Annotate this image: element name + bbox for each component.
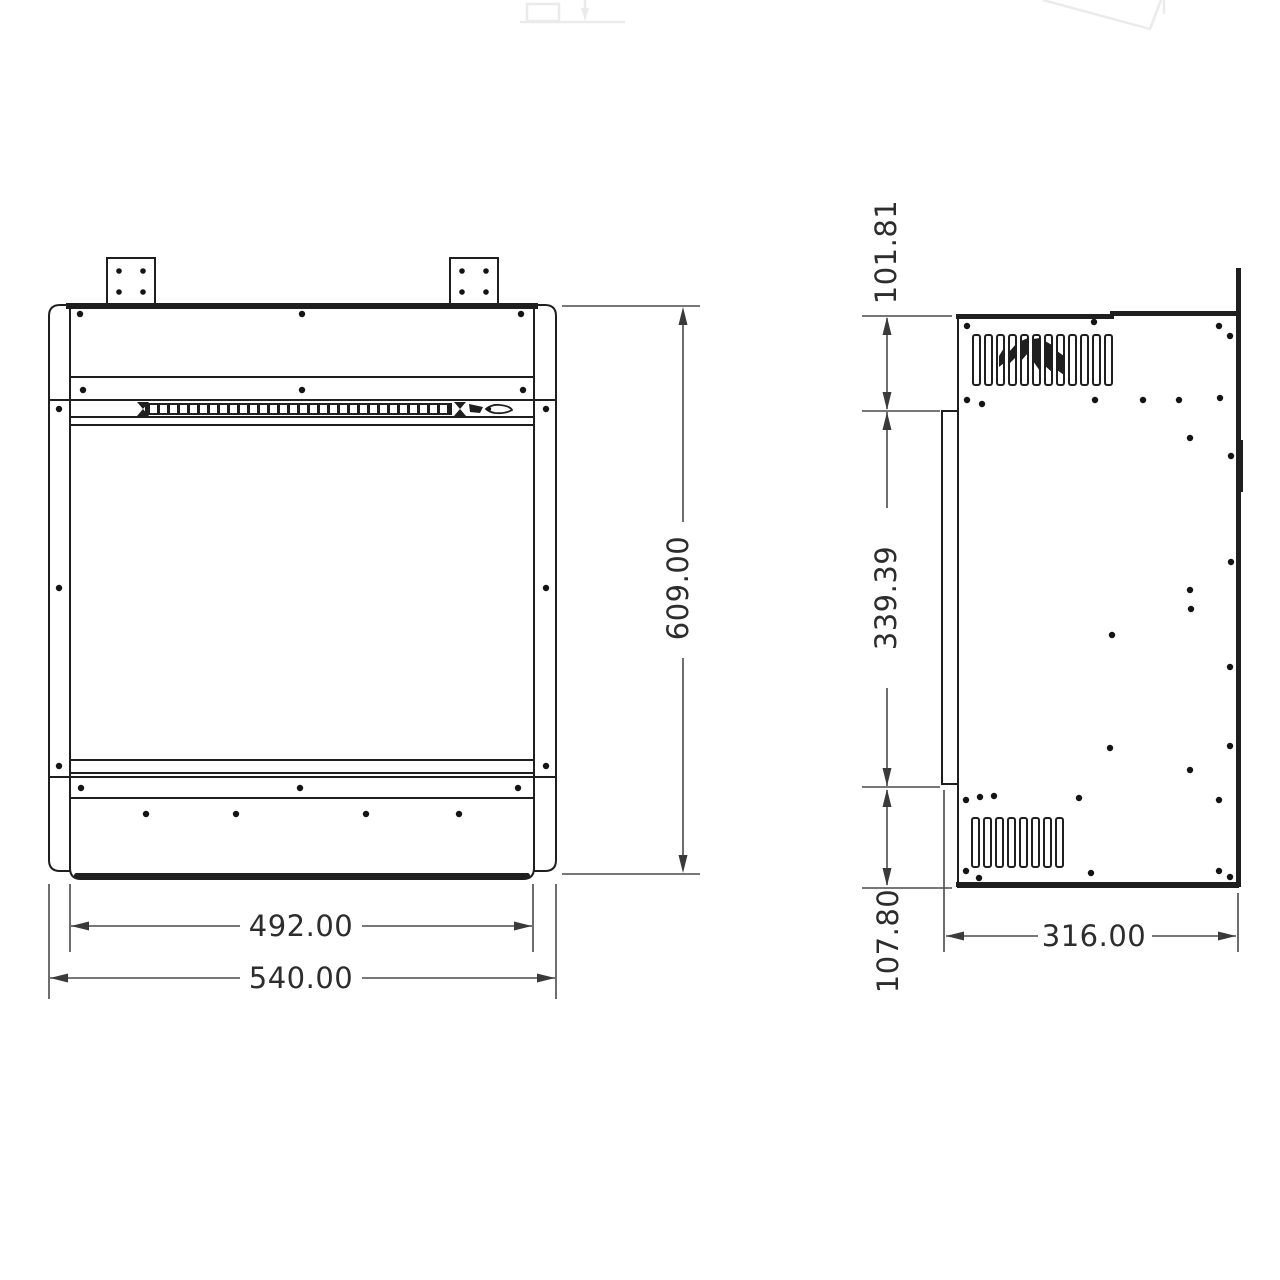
screw-hole — [1227, 664, 1233, 670]
dimension-arrow — [1218, 932, 1236, 941]
rail-corner-top-left — [49, 305, 70, 400]
screw-hole — [515, 785, 521, 791]
side-top-edge — [956, 314, 1114, 319]
dimension-arrow — [679, 307, 688, 325]
bracket-hole — [140, 289, 146, 295]
screw-hole — [1216, 323, 1222, 329]
screw-hole — [1217, 395, 1223, 401]
screw-hole — [1216, 868, 1222, 874]
screw-hole — [1187, 587, 1193, 593]
screw-hole — [1188, 606, 1194, 612]
rail-corner-top-right — [534, 305, 556, 400]
screw-hole — [1092, 397, 1098, 403]
dimension-arrow — [679, 855, 688, 873]
dimension-label-depth: 316.00 — [1042, 919, 1146, 953]
rail-corner-bottom-right — [534, 777, 556, 871]
dimension-arrow — [883, 768, 892, 786]
drawing-page: 609.00 492.00 540.00 — [0, 0, 1280, 1280]
screw-hole — [1076, 795, 1082, 801]
dim-opening-width: 492.00 — [70, 884, 533, 952]
bracket-hole — [459, 268, 465, 274]
rail-corner-bottom-left — [49, 777, 70, 871]
screw-hole — [1176, 397, 1182, 403]
glass-area — [70, 425, 534, 760]
dimension-label-glass-section: 339.39 — [869, 546, 903, 650]
screw-hole — [1187, 767, 1193, 773]
side-view — [942, 268, 1243, 887]
mounting-bracket-left — [107, 258, 155, 305]
back-tab — [1239, 440, 1243, 492]
screw-hole — [1107, 745, 1113, 751]
screw-hole — [543, 763, 549, 769]
dimension-arrow — [50, 974, 68, 983]
screw-hole — [143, 811, 149, 817]
screw-hole — [977, 794, 983, 800]
bracket-hole — [140, 268, 146, 274]
screw-hole — [56, 406, 62, 412]
screw-hole — [1109, 632, 1115, 638]
screw-hole — [543, 585, 549, 591]
screw-hole — [520, 387, 526, 393]
screw-hole — [456, 811, 462, 817]
screw-hole — [1227, 874, 1233, 880]
dimension-label-bottom-section: 107.80 — [871, 889, 905, 993]
mounting-bracket-right — [450, 258, 498, 305]
screw-hole — [963, 868, 969, 874]
glass-frame-bottom-band — [70, 760, 534, 773]
dimension-label-overall-width: 540.00 — [249, 961, 353, 995]
screw-hole — [991, 793, 997, 799]
dimension-label-height: 609.00 — [661, 536, 695, 640]
screw-hole — [1091, 319, 1097, 325]
front-flange — [942, 411, 958, 784]
dimension-label-opening-width: 492.00 — [249, 909, 353, 943]
dimension-arrow — [514, 922, 532, 931]
screw-hole — [1227, 743, 1233, 749]
dim-glass-section: 339.39 — [862, 412, 940, 787]
bracket-hole — [483, 268, 489, 274]
screw-hole — [964, 397, 970, 403]
side-bottom-edge — [956, 882, 1240, 887]
top-edge — [66, 303, 538, 309]
screw-hole — [56, 585, 62, 591]
screw-hole — [297, 785, 303, 791]
bracket-hole — [483, 289, 489, 295]
dimension-arrow — [883, 412, 892, 430]
cropped-drawing-artifact — [520, 0, 1164, 29]
screw-hole — [1140, 397, 1146, 403]
screw-hole — [80, 387, 86, 393]
damper-pivot — [487, 407, 491, 411]
dimension-arrow — [946, 932, 964, 941]
bottom-edge — [74, 873, 530, 878]
screw-hole — [518, 311, 524, 317]
screw-hole — [363, 811, 369, 817]
screw-hole — [299, 387, 305, 393]
screw-hole — [1228, 453, 1234, 459]
screw-hole — [78, 785, 84, 791]
screw-hole — [976, 875, 982, 881]
dimension-label-top-section: 101.81 — [869, 200, 903, 304]
screw-hole — [1187, 435, 1193, 441]
side-top-edge-step — [1110, 311, 1240, 316]
dimension-arrow — [71, 922, 89, 931]
technical-drawing: 609.00 492.00 540.00 — [0, 0, 1280, 1280]
dim-height: 609.00 — [562, 306, 700, 874]
dim-bottom-section: 107.80 — [862, 789, 952, 993]
bracket-hole — [459, 289, 465, 295]
dimension-arrow — [883, 868, 892, 886]
screw-hole — [233, 811, 239, 817]
screw-hole — [543, 406, 549, 412]
screw-hole — [56, 763, 62, 769]
screw-hole — [1228, 559, 1234, 565]
screw-hole — [299, 311, 305, 317]
bracket-hole — [116, 268, 122, 274]
dimension-arrow — [537, 974, 555, 983]
front-view — [49, 258, 556, 879]
screw-hole — [77, 311, 83, 317]
screw-hole — [979, 401, 985, 407]
back-flange — [1236, 268, 1241, 887]
bracket-hole — [116, 289, 122, 295]
screw-hole — [1088, 870, 1094, 876]
screw-hole — [963, 797, 969, 803]
bottom-panel — [70, 798, 534, 879]
screw-hole — [1216, 797, 1222, 803]
dimension-arrow — [883, 789, 892, 807]
dim-top-section: 101.81 — [862, 200, 952, 411]
screw-hole — [964, 323, 970, 329]
dimension-arrow — [883, 317, 892, 335]
screw-hole — [1227, 333, 1233, 339]
dimension-arrow — [883, 392, 892, 410]
